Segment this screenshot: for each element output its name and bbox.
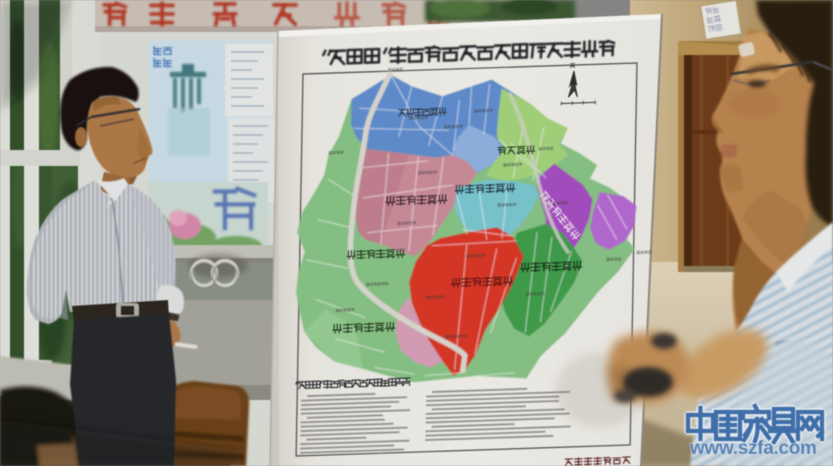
svg-text:www.szfa.com: www.szfa.com (689, 438, 817, 459)
